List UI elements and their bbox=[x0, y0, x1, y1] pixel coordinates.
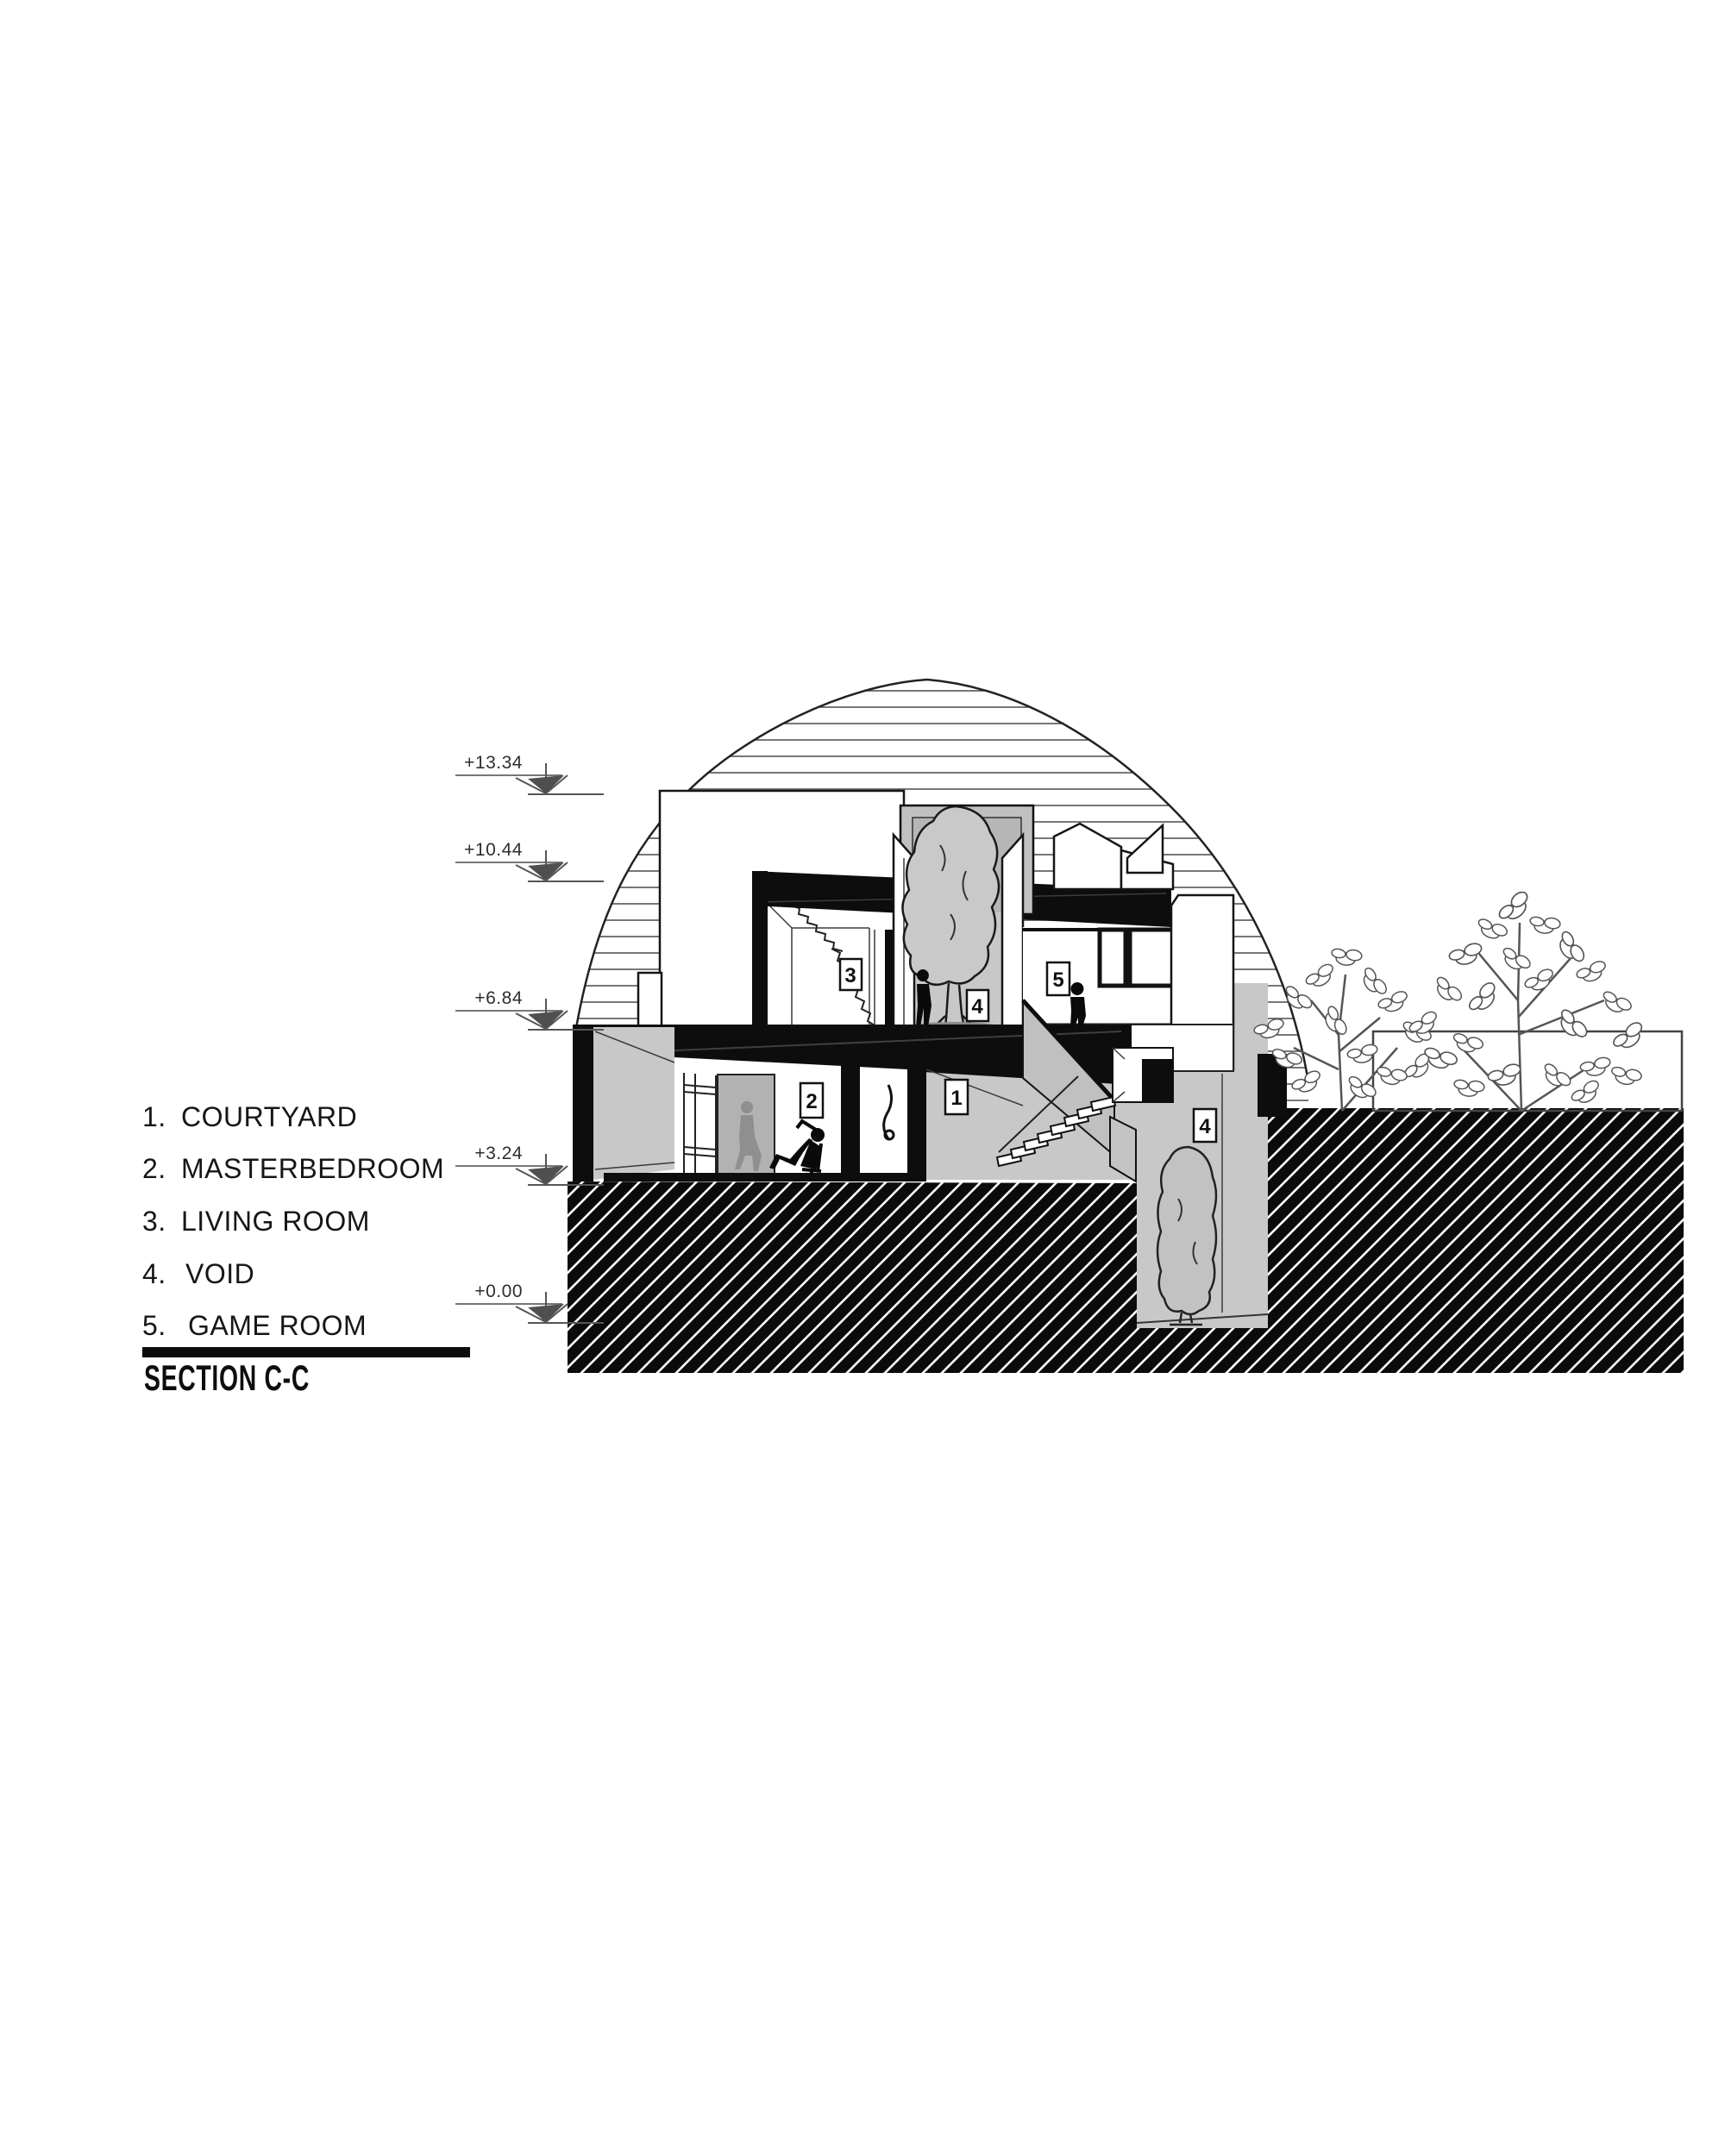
room-tag-living-room: 3 bbox=[840, 959, 862, 990]
column-2 bbox=[907, 1068, 926, 1178]
window-2 bbox=[1130, 930, 1175, 986]
room-tag-void-lower: 4 bbox=[1194, 1109, 1216, 1142]
room-tag-courtyard: 1 bbox=[945, 1080, 968, 1114]
legend-item-num: 4. bbox=[142, 1258, 166, 1289]
legend-item-num: 5. bbox=[142, 1310, 166, 1341]
room-tag-number: 4 bbox=[971, 995, 983, 1018]
window-1 bbox=[1100, 930, 1126, 986]
legend-item-num: 2. bbox=[142, 1153, 166, 1184]
elevation-value: +3.24 bbox=[474, 1144, 523, 1163]
terrain-hatch-left bbox=[568, 1181, 1137, 1373]
title-bar bbox=[142, 1347, 470, 1357]
room-tag-number: 5 bbox=[1052, 968, 1063, 992]
person-standing-stair bbox=[1070, 982, 1086, 1027]
room3-jamb bbox=[752, 871, 768, 1027]
legend-item-label: VOID bbox=[185, 1258, 254, 1289]
room-tag-game-room: 5 bbox=[1047, 962, 1069, 995]
legend-item-label: GAME ROOM bbox=[188, 1310, 367, 1341]
legend-item-label: MASTERBEDROOM bbox=[181, 1153, 444, 1184]
room-tag-number: 4 bbox=[1199, 1115, 1211, 1138]
left-exterior-wall bbox=[573, 1025, 593, 1181]
terrain-hatch-under-shaft bbox=[1137, 1328, 1268, 1373]
elevation-value: +0.00 bbox=[474, 1282, 523, 1301]
floor-strip bbox=[604, 1173, 926, 1181]
drawing-title: SECTION C-C bbox=[144, 1357, 310, 1398]
bedroom-side-wall bbox=[593, 1027, 674, 1180]
terrain-hatch-right bbox=[1268, 1108, 1684, 1373]
void-wall-right bbox=[1002, 835, 1023, 1027]
column-1 bbox=[841, 1062, 860, 1178]
room-tag-number: 1 bbox=[950, 1087, 962, 1110]
room-living bbox=[766, 893, 895, 1027]
legend-item-num: 3. bbox=[142, 1206, 166, 1237]
section-drawing: +13.34 +10.44 +6.84 +3.24 +0.00 1. COURT… bbox=[0, 0, 1725, 2156]
legend-item-label: COURTYARD bbox=[181, 1101, 357, 1132]
legend-item-num: 1. bbox=[142, 1101, 166, 1132]
shaft-tree bbox=[1157, 1147, 1216, 1325]
stair-landing-box bbox=[1113, 1048, 1173, 1102]
elevation-value: +10.44 bbox=[464, 840, 523, 860]
void-tower bbox=[894, 805, 1033, 1031]
elevation-value: +6.84 bbox=[474, 988, 523, 1008]
room-tag-number: 3 bbox=[844, 964, 856, 987]
legend-item-label: LIVING ROOM bbox=[181, 1206, 370, 1237]
room-tag-number: 2 bbox=[806, 1090, 817, 1113]
parapet-nub bbox=[638, 973, 662, 1027]
room-tag-masterbedroom: 2 bbox=[800, 1083, 823, 1118]
elevation-value: +13.34 bbox=[464, 753, 523, 773]
room-tag-void-upper: 4 bbox=[967, 990, 988, 1021]
